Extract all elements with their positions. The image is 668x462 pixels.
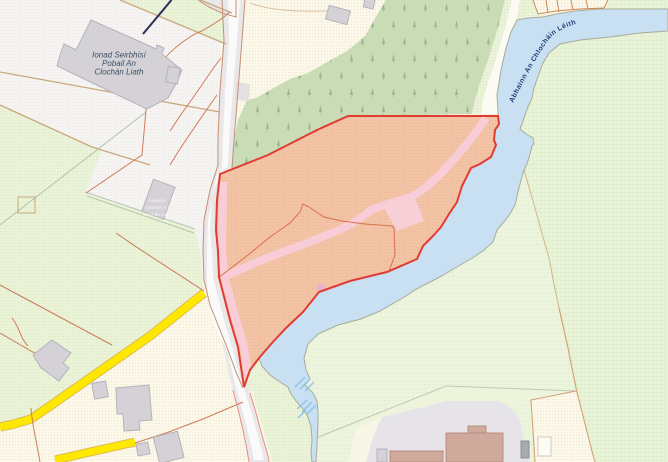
svg-text:Clochán Liath: Clochán Liath bbox=[143, 212, 172, 217]
svg-text:Stáisiún: Stáisiún bbox=[149, 198, 166, 203]
svg-text:Dóiteáin An: Dóiteáin An bbox=[145, 205, 169, 210]
svg-text:Clochán Liath: Clochán Liath bbox=[95, 68, 144, 77]
